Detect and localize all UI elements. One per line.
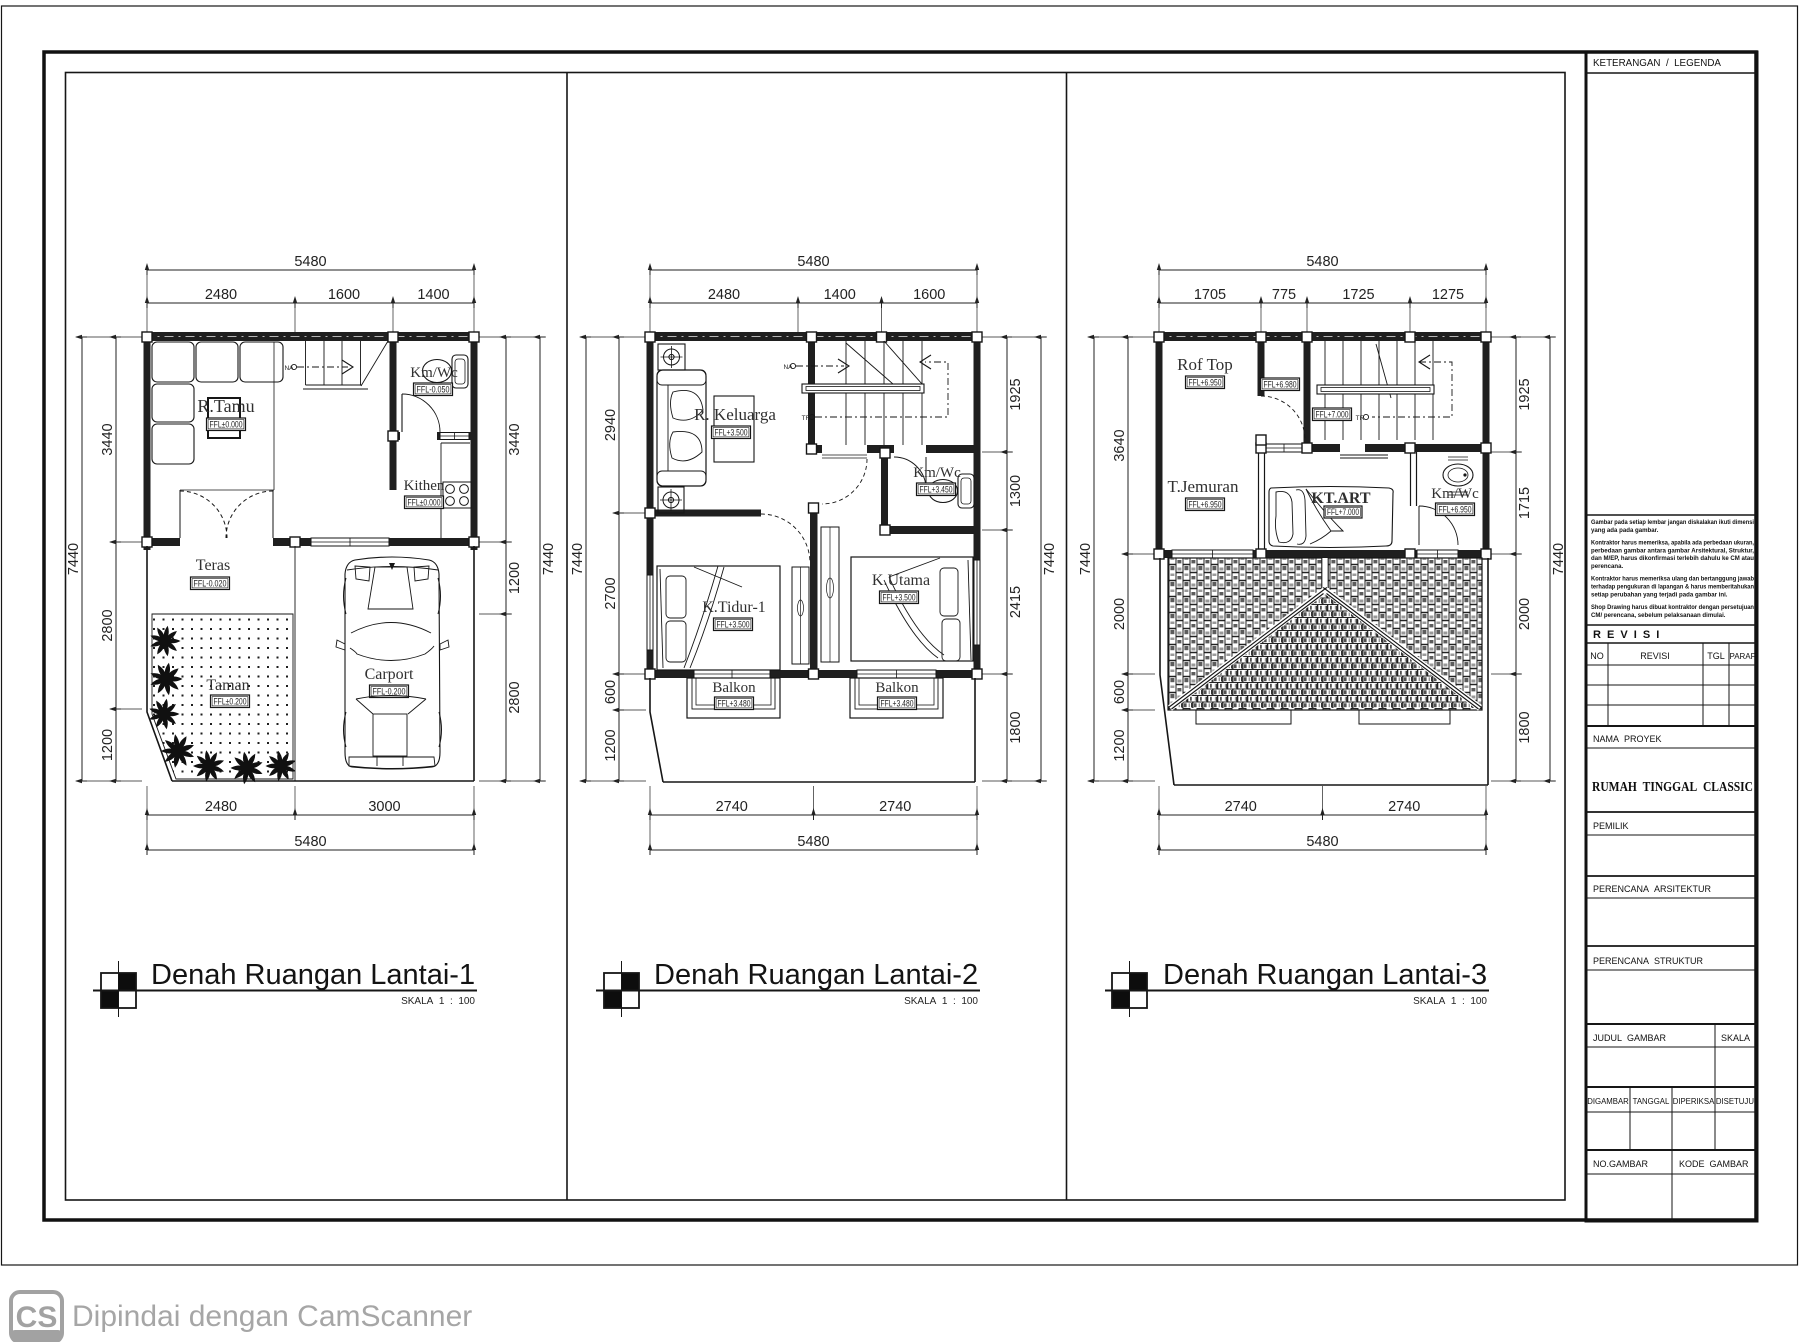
- svg-text:SKALA 1 : 100: SKALA 1 : 100: [401, 996, 475, 1007]
- svg-text:600: 600: [1112, 680, 1128, 704]
- svg-text:Km/Wc: Km/Wc: [913, 465, 961, 481]
- svg-text:yang ada pada gambar.: yang ada pada gambar.: [1591, 527, 1659, 534]
- svg-text:KODE GAMBAR: KODE GAMBAR: [1679, 1159, 1749, 1169]
- svg-text:Km/Wc: Km/Wc: [1431, 486, 1479, 502]
- svg-text:Shop Drawing harus dibuat kont: Shop Drawing harus dibuat kontraktor den…: [1591, 604, 1754, 611]
- svg-text:REVISI: REVISI: [1640, 651, 1670, 661]
- svg-text:FFL+3.500: FFL+3.500: [883, 592, 916, 602]
- svg-text:1600: 1600: [328, 287, 360, 303]
- svg-text:FFL+3.450: FFL+3.450: [920, 484, 953, 494]
- svg-text:5480: 5480: [797, 834, 829, 850]
- svg-text:Kithen: Kithen: [404, 478, 445, 494]
- svg-text:2800: 2800: [100, 609, 116, 641]
- svg-text:NO.GAMBAR: NO.GAMBAR: [1593, 1159, 1649, 1169]
- svg-text:1925: 1925: [1517, 378, 1533, 410]
- svg-text:SKALA 1 : 100: SKALA 1 : 100: [904, 996, 978, 1007]
- svg-text:TR: TR: [802, 415, 811, 422]
- svg-text:K.Tidur-1: K.Tidur-1: [702, 599, 766, 616]
- svg-text:1400: 1400: [824, 287, 856, 303]
- svg-text:600: 600: [603, 680, 619, 704]
- svg-text:2480: 2480: [708, 287, 740, 303]
- svg-text:NAMA PROYEK: NAMA PROYEK: [1593, 734, 1662, 744]
- svg-text:perbedaan gambar antara gambar: perbedaan gambar antara gambar Arsitektu…: [1591, 547, 1754, 554]
- svg-text:Rof Top: Rof Top: [1177, 355, 1233, 374]
- svg-text:Km/Wc: Km/Wc: [410, 365, 458, 381]
- svg-text:1200: 1200: [100, 729, 116, 761]
- svg-text:KETERANGAN / LEGENDA: KETERANGAN / LEGENDA: [1593, 58, 1721, 69]
- svg-text:2740: 2740: [879, 799, 911, 815]
- svg-text:5480: 5480: [294, 254, 326, 270]
- svg-text:PERENCANA ARSITEKTUR: PERENCANA ARSITEKTUR: [1593, 884, 1712, 894]
- svg-text:FFL+7.000: FFL+7.000: [1327, 507, 1359, 517]
- svg-text:FFL+3.500: FFL+3.500: [717, 619, 750, 629]
- svg-text:1200: 1200: [1112, 729, 1128, 761]
- svg-text:5480: 5480: [294, 834, 326, 850]
- svg-text:FFL+3.480: FFL+3.480: [718, 698, 751, 708]
- svg-text:2940: 2940: [603, 409, 619, 441]
- svg-text:5480: 5480: [1306, 254, 1338, 270]
- svg-text:2800: 2800: [507, 681, 523, 713]
- svg-text:terhadap pengukuran di lapanga: terhadap pengukuran di lapangan & harus …: [1591, 584, 1754, 591]
- svg-text:TGL: TGL: [1707, 651, 1725, 661]
- svg-text:2480: 2480: [205, 287, 237, 303]
- svg-text:FFL-0.200: FFL-0.200: [373, 686, 406, 696]
- svg-text:7440: 7440: [1078, 543, 1094, 575]
- svg-text:1705: 1705: [1194, 287, 1226, 303]
- svg-text:1275: 1275: [1432, 287, 1464, 303]
- svg-text:2000: 2000: [1517, 598, 1533, 630]
- svg-text:SKALA 1 : 100: SKALA 1 : 100: [1413, 996, 1487, 1007]
- svg-text:7440: 7440: [570, 543, 586, 575]
- svg-text:3440: 3440: [100, 423, 116, 455]
- svg-text:CS: CS: [16, 1301, 58, 1334]
- svg-text:Balkon: Balkon: [875, 680, 919, 696]
- svg-text:7440: 7440: [66, 543, 82, 575]
- svg-text:Dipindai dengan CamScanner: Dipindai dengan CamScanner: [72, 1300, 472, 1333]
- svg-text:7440: 7440: [1042, 543, 1058, 575]
- svg-text:NO: NO: [1590, 651, 1604, 661]
- svg-text:Kontraktor harus memeriksa, ap: Kontraktor harus memeriksa, apabila ada …: [1591, 539, 1754, 546]
- svg-text:FFL+6.950: FFL+6.950: [1439, 504, 1472, 514]
- svg-text:FFL+3.480: FFL+3.480: [881, 698, 914, 708]
- svg-text:PERENCANA STRUKTUR: PERENCANA STRUKTUR: [1593, 956, 1704, 966]
- svg-text:FFL+3.500: FFL+3.500: [715, 427, 748, 437]
- svg-text:2740: 2740: [716, 799, 748, 815]
- svg-text:FFL±0.200: FFL±0.200: [214, 696, 247, 706]
- svg-text:FFL-0.020: FFL-0.020: [194, 578, 227, 588]
- svg-text:dan M/EP, harus dikonfirmasi t: dan M/EP, harus dikonfirmasi terlebih da…: [1591, 555, 1754, 562]
- svg-text:FFL+7.000: FFL+7.000: [1316, 409, 1349, 419]
- svg-text:FFL±0.000: FFL±0.000: [210, 419, 243, 429]
- svg-text:FFL+6.950: FFL+6.950: [1189, 377, 1222, 387]
- svg-text:DIGAMBAR: DIGAMBAR: [1587, 1097, 1629, 1106]
- svg-text:FFL±0.000: FFL±0.000: [408, 497, 441, 507]
- svg-text:K.Utama: K.Utama: [872, 572, 930, 589]
- svg-text:2740: 2740: [1388, 799, 1420, 815]
- svg-text:1200: 1200: [507, 562, 523, 594]
- svg-text:Gambar pada setiap lembar jang: Gambar pada setiap lembar jangan diskala…: [1591, 519, 1754, 526]
- svg-text:FFL+6.950: FFL+6.950: [1189, 499, 1222, 509]
- svg-text:1800: 1800: [1517, 711, 1533, 743]
- svg-text:Denah Ruangan Lantai-2: Denah Ruangan Lantai-2: [654, 959, 978, 991]
- svg-text:RUMAH TINGGAL CLASSIC: RUMAH TINGGAL CLASSIC: [1592, 780, 1753, 795]
- svg-text:Teras: Teras: [196, 557, 230, 574]
- svg-text:2700: 2700: [603, 577, 619, 609]
- svg-text:1300: 1300: [1008, 475, 1024, 507]
- svg-text:1400: 1400: [417, 287, 449, 303]
- svg-text:PARAF: PARAF: [1729, 652, 1755, 661]
- svg-text:TR: TR: [1356, 415, 1365, 422]
- svg-text:KT.ART: KT.ART: [1311, 490, 1370, 507]
- svg-text:T.Jemuran: T.Jemuran: [1168, 477, 1239, 496]
- svg-text:Denah Ruangan Lantai-1: Denah Ruangan Lantai-1: [151, 959, 475, 991]
- svg-text:perencana.: perencana.: [1591, 563, 1623, 570]
- svg-text:3000: 3000: [368, 799, 400, 815]
- svg-text:Denah Ruangan Lantai-3: Denah Ruangan Lantai-3: [1163, 959, 1487, 991]
- svg-text:TANGGAL: TANGGAL: [1633, 1097, 1670, 1106]
- svg-text:R. Keluarga: R. Keluarga: [694, 405, 776, 424]
- svg-text:775: 775: [1272, 287, 1296, 303]
- svg-text:7440: 7440: [1551, 543, 1567, 575]
- svg-text:1725: 1725: [1342, 287, 1374, 303]
- svg-text:NA: NA: [783, 364, 793, 371]
- svg-text:CM/ perencana, sebelum pelaksa: CM/ perencana, sebelum pelaksanaan dimul…: [1591, 612, 1726, 619]
- svg-text:PEMILIK: PEMILIK: [1593, 821, 1629, 831]
- svg-text:2000: 2000: [1112, 598, 1128, 630]
- svg-text:1800: 1800: [1008, 711, 1024, 743]
- svg-text:R E V I S I: R E V I S I: [1593, 629, 1661, 641]
- svg-text:Taman: Taman: [206, 677, 249, 694]
- svg-text:setiap perubahan yang terjadi: setiap perubahan yang terjadi pada gamba…: [1591, 591, 1728, 598]
- svg-text:DISETUJUI: DISETUJUI: [1716, 1097, 1756, 1106]
- svg-text:SKALA: SKALA: [1721, 1033, 1750, 1043]
- svg-text:Carport: Carport: [365, 666, 414, 683]
- svg-text:FFL+6.980: FFL+6.980: [1264, 379, 1297, 389]
- svg-text:2740: 2740: [1225, 799, 1257, 815]
- svg-text:R.Tamu: R.Tamu: [197, 396, 254, 416]
- svg-text:NA: NA: [284, 365, 294, 372]
- svg-text:7440: 7440: [541, 543, 557, 575]
- svg-text:Balkon: Balkon: [712, 680, 756, 696]
- svg-text:1925: 1925: [1008, 378, 1024, 410]
- svg-text:2415: 2415: [1008, 586, 1024, 618]
- svg-text:3440: 3440: [507, 423, 523, 455]
- svg-text:1715: 1715: [1517, 487, 1533, 519]
- svg-text:5480: 5480: [797, 254, 829, 270]
- svg-text:FFL-0.050: FFL-0.050: [417, 384, 450, 394]
- svg-text:Kontraktor harus memeriksa ula: Kontraktor harus memeriksa ulang dan ber…: [1591, 576, 1754, 583]
- svg-text:2480: 2480: [205, 799, 237, 815]
- svg-text:JUDUL GAMBAR: JUDUL GAMBAR: [1593, 1033, 1667, 1043]
- svg-text:1600: 1600: [913, 287, 945, 303]
- svg-text:5480: 5480: [1306, 834, 1338, 850]
- svg-text:3640: 3640: [1112, 429, 1128, 461]
- svg-text:1200: 1200: [603, 729, 619, 761]
- svg-text:DIPERIKSA: DIPERIKSA: [1673, 1097, 1715, 1106]
